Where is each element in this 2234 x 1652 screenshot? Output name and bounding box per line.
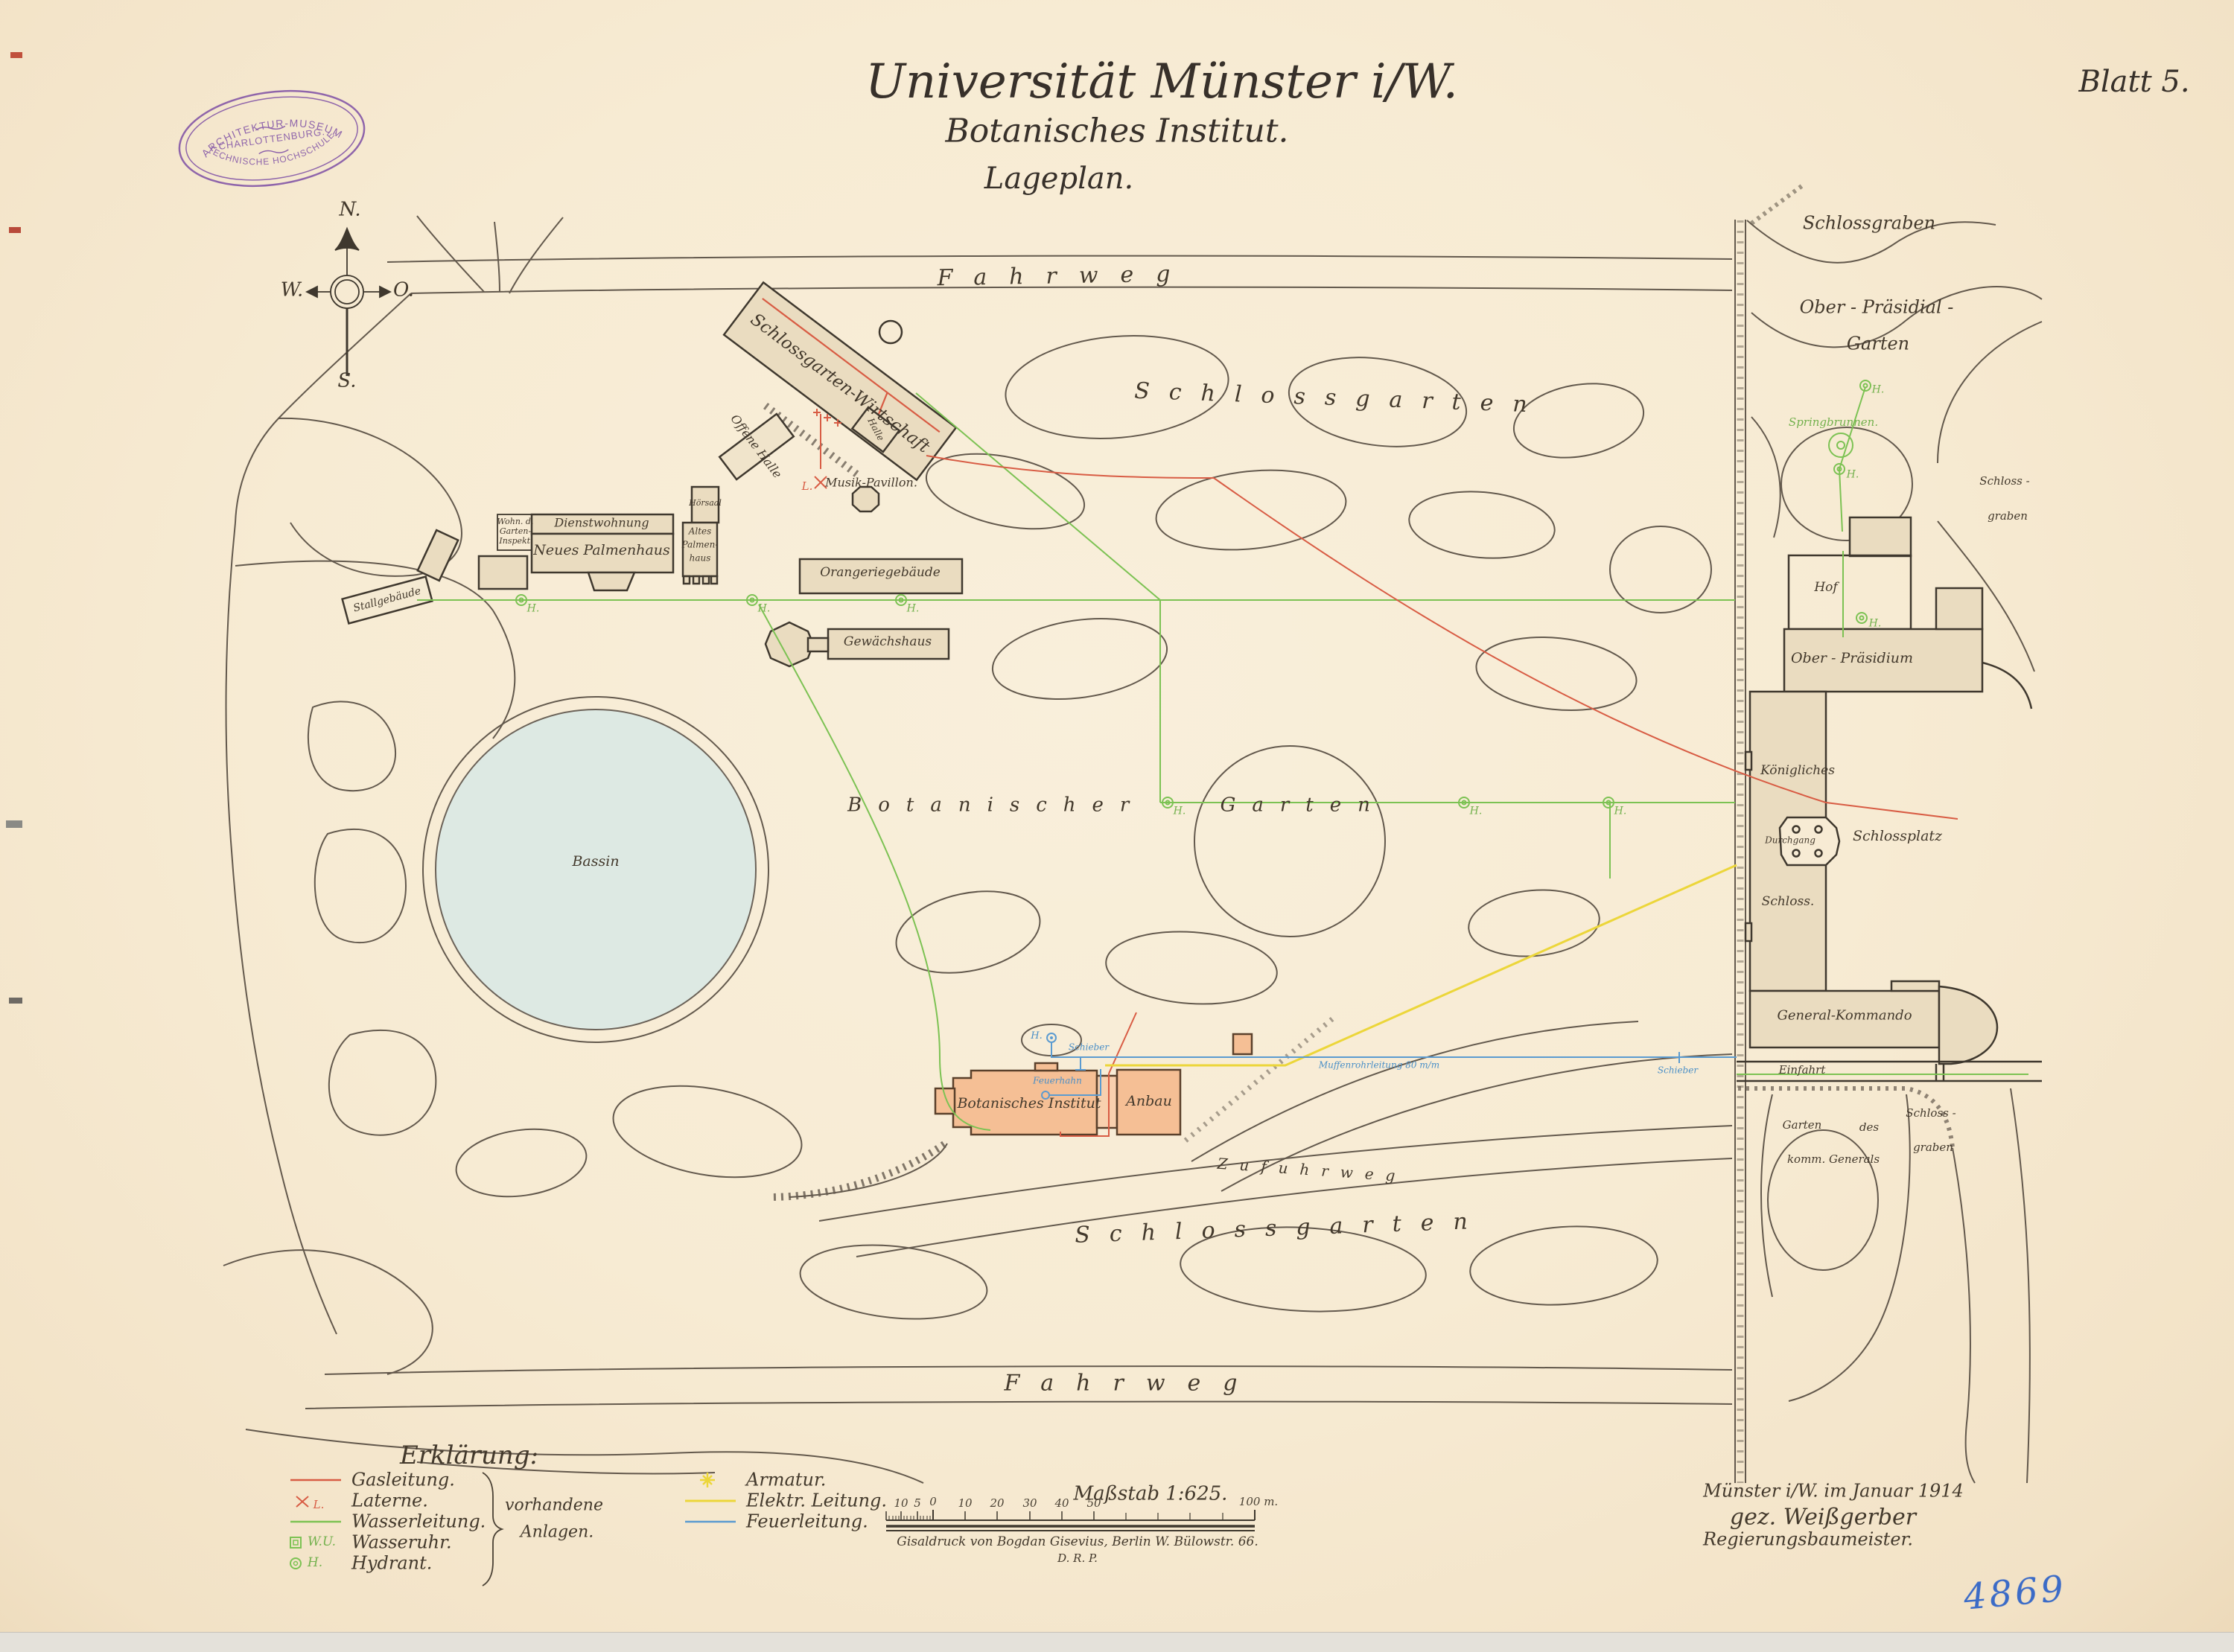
- label-schlossgraben-mid-2: graben: [1988, 511, 2028, 523]
- hydrant-label-blue: H.: [1031, 1031, 1042, 1042]
- label-garten-des-2: des: [1859, 1122, 1879, 1134]
- hydrant-label: H.: [1872, 385, 1885, 396]
- label-springbrunnen: Springbrunnen.: [1789, 417, 1878, 429]
- legend-item-wasseruhr: Wasseruhr.: [351, 1533, 452, 1551]
- label-botanisches-institut: Botanisches Institut: [957, 1097, 1101, 1112]
- scale-bar: [886, 1510, 1255, 1531]
- hydrant-label: H.: [1847, 470, 1859, 481]
- label-anbau: Anbau: [1126, 1094, 1172, 1109]
- plan-type-label: Lageplan.: [984, 162, 1133, 196]
- label-fahrweg-bottom: Fahrweg: [1005, 1371, 1260, 1395]
- label-wohn-inspekt-1: Wohn. d.: [497, 517, 534, 526]
- legend-item-armatur: Armatur.: [746, 1470, 826, 1489]
- hof-courtyard: [1789, 555, 1911, 629]
- label-feuerhahn: Feuerhahn: [1033, 1077, 1082, 1086]
- label-ober-praesidial-2: Garten: [1847, 334, 1909, 353]
- legend-item-laterne: Laterne.: [351, 1491, 428, 1510]
- compass-e-label: O.: [393, 280, 414, 300]
- scale-end-label: 100 m.: [1239, 1495, 1278, 1508]
- building-hof-wing: [1850, 517, 1911, 556]
- archive-number: 4869: [1962, 1570, 2068, 1616]
- building-unlabeled: [479, 556, 527, 589]
- label-koenigliches: Königliches: [1760, 765, 1835, 778]
- building-palmenhaus-bay: [588, 573, 634, 590]
- legend-item-elektr-leitung: Elektr. Leitung.: [746, 1491, 887, 1510]
- label-orangeriegebaeude: Orangeriegebäude: [820, 567, 941, 580]
- scale-tick: 5: [914, 1496, 921, 1510]
- label-muffenrohrleitung: Muffenrohrleitung 80 m/m: [1319, 1061, 1439, 1071]
- label-schloss: Schloss.: [1762, 896, 1815, 909]
- hydrant-label: H.: [758, 604, 771, 615]
- label-musik-pavillon: Musik-Pavillon.: [825, 477, 917, 490]
- page-title: Universität Münster i/W.: [865, 54, 1458, 109]
- scale-tick: 30: [1022, 1496, 1037, 1510]
- label-schlossplatz: Schlossplatz: [1853, 829, 1942, 844]
- compass-rose: [307, 229, 390, 376]
- scale-tick: 20: [990, 1496, 1004, 1510]
- label-einfahrt: Einfahrt: [1779, 1065, 1826, 1077]
- label-bassin: Bassin: [572, 855, 619, 870]
- label-dienstwohnung: Dienstwohnung: [554, 517, 649, 530]
- label-wohn-inspekt-3: Inspekt.: [499, 537, 532, 546]
- signature-role: Regierungsbaumeister.: [1703, 1530, 1913, 1549]
- building-small-annex: [418, 530, 458, 581]
- label-gewaechshaus: Gewächshaus: [844, 636, 932, 649]
- legend-item-feuerleitung: Feuerleitung.: [746, 1512, 868, 1531]
- label-hof: Hof: [1814, 581, 1837, 595]
- hydrant-label: H.: [1470, 806, 1483, 817]
- laterne-label: L.: [802, 481, 813, 493]
- legend-item-hydrant: Hydrant.: [351, 1554, 432, 1572]
- plan-sheet: ARCHITEKTUR-MUSEUM CHARLOTTENBURG. TECHN…: [0, 0, 2234, 1652]
- legend-l-letter: L.: [314, 1499, 325, 1511]
- hydrant-label: H.: [1869, 619, 1882, 630]
- scale-tick: 10: [894, 1496, 908, 1510]
- label-general-kommando: General-Kommando: [1777, 1010, 1912, 1024]
- label-schieber-2: Schieber: [1658, 1066, 1698, 1076]
- legend-heading: Erklärung:: [400, 1443, 538, 1470]
- building-musik-pavillon: [853, 487, 879, 511]
- hydrant-label: H.: [1614, 806, 1627, 817]
- compass-n-label: N.: [339, 200, 360, 220]
- hydrant-label: H.: [907, 604, 920, 615]
- label-garten-des-3: komm. Generals: [1787, 1154, 1880, 1166]
- building-small-square: [1233, 1034, 1252, 1054]
- label-wohn-inspekt-2: Garten-: [500, 527, 531, 536]
- legend-item-wasserleitung: Wasserleitung.: [351, 1512, 486, 1531]
- signature-place-date: Münster i/W. im Januar 1914: [1703, 1482, 1964, 1500]
- scale-tick: 10: [958, 1496, 972, 1510]
- museum-stamp: ARCHITEKTUR-MUSEUM CHARLOTTENBURG. TECHN…: [174, 80, 371, 197]
- hydrant-label: H.: [527, 604, 540, 615]
- north-arrow: [335, 229, 359, 250]
- label-altes-palmenhaus-3: haus: [690, 554, 711, 564]
- compass-s-label: S.: [337, 371, 356, 391]
- paper-edge: [0, 1632, 2234, 1652]
- print-credit-1: Gisaldruck von Bogdan Gisevius, Berlin W…: [897, 1536, 1258, 1549]
- label-hoersaal: Hörsaal: [689, 499, 722, 508]
- scale-tick: 0: [929, 1495, 937, 1508]
- label-fahrweg-top: Fahrweg: [937, 262, 1192, 290]
- label-schlossgraben-bot-1: Schloss -: [1906, 1108, 1955, 1120]
- building-annex-ne: [1936, 588, 1982, 629]
- label-botanischer-garten: Botanischer Garten: [847, 795, 1387, 815]
- building-bastion: [1939, 986, 1997, 1064]
- label-ober-praesidial-1: Ober - Präsidial -: [1800, 298, 1954, 316]
- edge-marks: [6, 52, 22, 1004]
- scale-tick: 50: [1086, 1496, 1101, 1510]
- hydrant-label: H.: [1174, 806, 1186, 817]
- print-credit-2: D. R. P.: [1057, 1553, 1098, 1565]
- compass-w-label: W.: [281, 280, 303, 300]
- legend-item-gasleitung: Gasleitung.: [351, 1470, 455, 1489]
- label-schlossgraben-topright: Schlossgraben: [1803, 214, 1935, 232]
- label-schlossgraben-mid-1: Schloss -: [1979, 476, 2029, 488]
- label-altes-palmenhaus-1: Altes: [689, 527, 712, 537]
- signature-name: gez. Weißgerber: [1730, 1505, 1916, 1529]
- label-altes-palmenhaus-2: Palmen-: [682, 540, 719, 550]
- label-garten-des-1: Garten: [1783, 1120, 1822, 1132]
- legend-wu-letters: W.U.: [308, 1536, 336, 1549]
- legend-note-1: vorhandene: [505, 1496, 603, 1514]
- label-durchgang: Durchgang: [1765, 836, 1815, 846]
- label-schlossgraben-bot-2: graben: [1913, 1142, 1953, 1154]
- springbrunnen-fountain: [1829, 433, 1853, 457]
- legend-note-2: Anlagen.: [521, 1523, 593, 1540]
- building-institut-porch: [1035, 1063, 1057, 1071]
- label-neues-palmenhaus: Neues Palmenhaus: [533, 543, 670, 558]
- sheet-number: Blatt 5.: [2078, 65, 2189, 99]
- label-schieber-1: Schieber: [1069, 1043, 1109, 1053]
- page-subtitle: Botanisches Institut.: [945, 112, 1288, 150]
- legend-h-letter: H.: [308, 1557, 322, 1570]
- map-canvas: ARCHITEKTUR-MUSEUM CHARLOTTENBURG. TECHN…: [0, 0, 2234, 1652]
- label-ober-praesidium: Ober - Präsidium: [1791, 651, 1913, 666]
- scale-tick: 40: [1054, 1496, 1069, 1510]
